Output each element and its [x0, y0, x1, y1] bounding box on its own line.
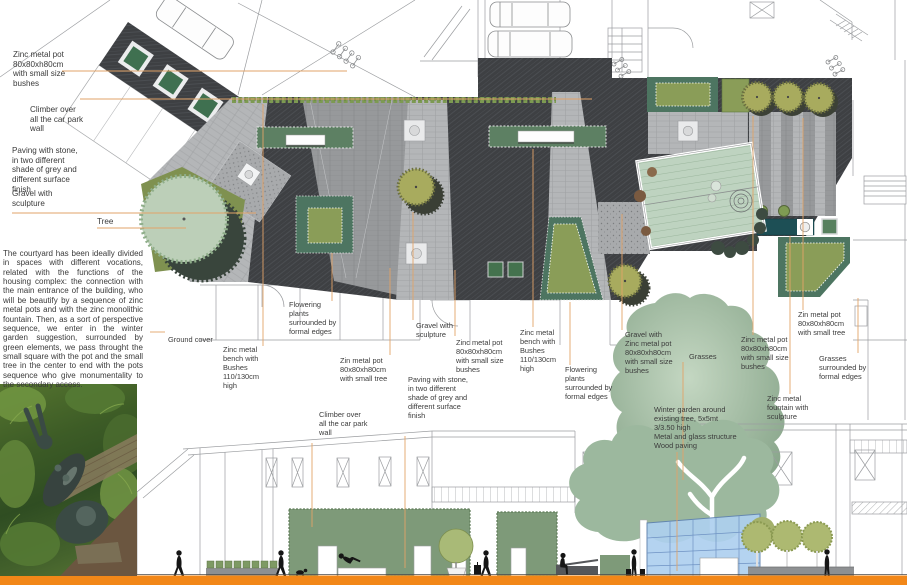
label-climber-left: Climber over all the car park wall — [30, 105, 118, 134]
label-fountain: Zinc metal fountain with sculpture — [767, 395, 832, 422]
footer-bar — [0, 575, 907, 585]
parked-cars — [154, 0, 572, 62]
label-climber-2: Climber over all the car park wall — [319, 411, 401, 438]
winter-garden-plan — [634, 143, 768, 258]
label-zin-pot-tree-2: Zin metal pot 80x80xh80cm with small tre… — [798, 311, 870, 338]
label-winter-garden: Winter garden around existing tree, 5x5m… — [654, 406, 766, 450]
label-paving-2: Paving with stone, in two different shad… — [408, 376, 492, 420]
label-grasses-1: Grasses — [689, 353, 739, 362]
label-zinc-pot-left: Zinc metal pot 80x80xh80cm with small si… — [13, 50, 93, 89]
label-gravel-zinc-pot: Gravel with Zinc metal pot 80x80xh80cm w… — [625, 331, 695, 375]
label-zinc-pot-3: Zinc metal pot 80x80xh80cm with small si… — [741, 336, 811, 372]
sculpture-photo-art — [0, 384, 137, 576]
label-paving-left: Paving with stone, in two different shad… — [12, 146, 107, 195]
description-paragraph: The courtyard has been ideally divided i… — [3, 249, 143, 389]
label-flowering-1: Flowering plants surrounded by formal ed… — [289, 301, 364, 337]
label-ground-cover: Ground cover — [168, 336, 240, 345]
label-tree: Tree — [97, 217, 137, 227]
presentation-board: Zinc metal pot 80x80xh80cm with small si… — [0, 0, 907, 585]
label-grasses-2: Grasses surrounded by formal edges — [819, 355, 899, 382]
label-zinc-pot-2: Zinc metal pot 80x80xh80cm with small si… — [456, 339, 526, 375]
label-gravel-left: Gravel with sculpture — [12, 189, 92, 208]
sculpture-photo — [0, 384, 137, 576]
label-zin-pot-tree-1: Zin metal pot 80x80xh80cm with small tre… — [340, 357, 406, 384]
label-bench-1: Zinc metal bench with Bushes 110/130cm h… — [223, 346, 285, 390]
